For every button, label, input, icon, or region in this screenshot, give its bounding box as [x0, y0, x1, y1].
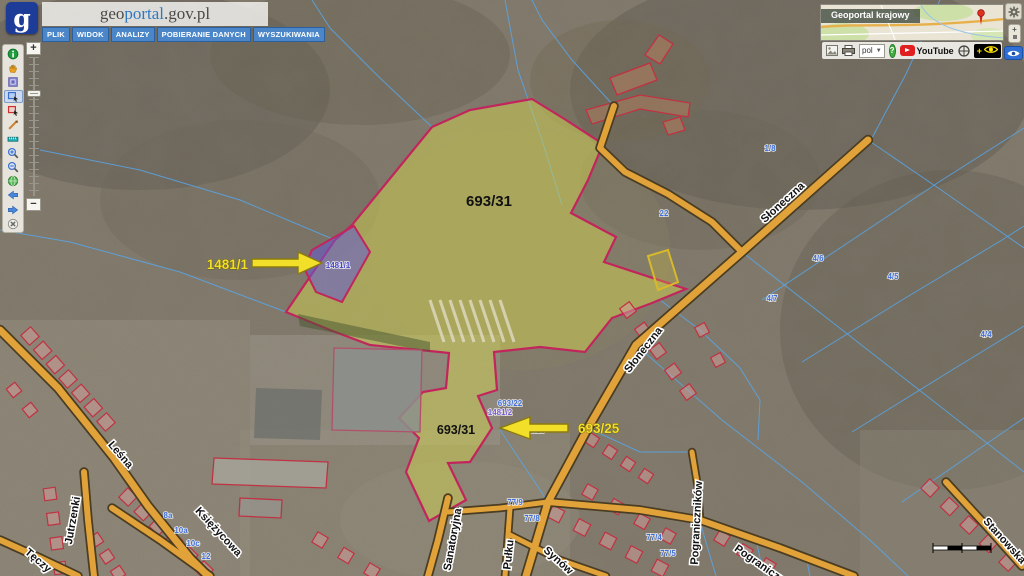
parcel-number-label: 1481/1 — [326, 261, 351, 270]
previous-view-icon — [7, 189, 19, 201]
measure-area-icon — [7, 133, 19, 145]
annotation-label: 693/25 — [578, 421, 620, 436]
map-canvas[interactable]: SłonecznaSłonecznaLeśnaJutrzenkiKsiężyco… — [0, 0, 1024, 576]
menu-item-analizy[interactable]: ANALIZY — [111, 27, 155, 42]
gear-icon — [1008, 6, 1020, 18]
measure-line-button[interactable] — [4, 118, 23, 131]
parcel-number-label: 22 — [660, 209, 669, 218]
parcel-number-label: 10c — [186, 539, 200, 548]
overview-map-title: Geoportal krajowy — [821, 9, 920, 23]
pan-hand-icon — [7, 62, 19, 74]
main-menu: PLIKWIDOKANALIZYPOBIERANIE DANYCHWYSZUKI… — [42, 27, 325, 42]
printer-icon — [842, 45, 855, 56]
menu-item-plik[interactable]: PLIK — [42, 27, 70, 42]
gallery-button[interactable] — [826, 45, 838, 56]
settings-gear-button[interactable] — [1005, 3, 1022, 20]
measure-line-icon — [7, 119, 19, 131]
help-button[interactable]: ? — [889, 44, 896, 58]
parcel-number-label: 77/8 — [524, 514, 540, 523]
parcel-number-label: 4/4 — [980, 330, 992, 339]
layers-legend-button[interactable] — [4, 75, 23, 88]
youtube-link[interactable]: YouTube — [900, 45, 954, 56]
strip-dot-icon[interactable] — [1013, 35, 1017, 39]
tool-palette — [2, 44, 24, 233]
youtube-label: YouTube — [917, 46, 954, 56]
identify-info-icon — [7, 48, 19, 60]
parcel-number-label: 77/4 — [646, 533, 662, 542]
coordinates-globe-button[interactable] — [958, 45, 970, 57]
zoom-rect-out-button[interactable] — [4, 104, 23, 117]
house-footprint — [50, 537, 63, 550]
house-footprint — [47, 512, 60, 525]
overview-map[interactable]: Geoportal krajowy — [820, 4, 1004, 41]
eye-icon — [1007, 49, 1020, 58]
measure-area-button[interactable] — [4, 132, 23, 145]
parcel-number-label: 12 — [202, 552, 211, 561]
site-title: geoportal.gov.pl — [42, 2, 268, 26]
menu-item-widok[interactable]: WIDOK — [72, 27, 109, 42]
zoom-slider-handle[interactable] — [27, 90, 41, 97]
parcel-number-label: 10a — [174, 526, 188, 535]
previous-view-button[interactable] — [4, 189, 23, 202]
strip-plus-label[interactable]: + — [1012, 25, 1017, 34]
zoom-out-button[interactable]: − — [26, 198, 41, 211]
next-view-button[interactable] — [4, 203, 23, 216]
menu-item-wyszukiwania[interactable]: WYSZUKIWANIA — [253, 27, 325, 42]
geoportal-logo[interactable]: g — [6, 2, 38, 34]
zoom-in-icon — [7, 147, 19, 159]
zoom-rect-in-icon — [7, 90, 19, 102]
parcel-number-label: 77/5 — [660, 549, 676, 558]
zoom-rect-in-button[interactable] — [4, 90, 23, 103]
cancel-button[interactable] — [4, 217, 23, 230]
title-portal: portal — [124, 4, 164, 24]
overview-zoom-strip[interactable]: + — [1008, 24, 1021, 43]
logo-g-glyph: g — [13, 4, 30, 33]
print-button[interactable] — [842, 45, 855, 56]
title-geo: geo — [100, 4, 125, 24]
zoom-in-button[interactable]: + — [26, 42, 41, 55]
chevron-down-icon: ▼ — [876, 48, 882, 54]
parcel-number-label: 8a — [164, 511, 173, 520]
parcel-area-label: 693/31 — [466, 193, 512, 210]
annotation-label: 1481/1 — [207, 257, 249, 272]
zoom-in-button[interactable] — [4, 146, 23, 159]
parcel-number-label: 4/7 — [766, 294, 778, 303]
parcel-number-label: 1481/2 — [488, 408, 513, 417]
crosshair-globe-icon — [958, 45, 970, 57]
cancel-icon — [7, 218, 19, 230]
contrast-eye-icon — [984, 45, 998, 56]
next-view-icon — [7, 204, 19, 216]
language-select[interactable]: pol ▼ — [859, 44, 885, 58]
menu-item-pobieranie-danych[interactable]: POBIERANIE DANYCH — [157, 27, 251, 42]
youtube-play-icon — [900, 45, 915, 56]
identify-info-button[interactable] — [4, 47, 23, 60]
title-suffix: .gov.pl — [164, 4, 210, 24]
parcel-number-label: 4/5 — [887, 272, 899, 281]
layers-legend-icon — [7, 76, 19, 88]
parcel-number-label: 693/22 — [498, 399, 523, 408]
visibility-eye-button[interactable] — [1004, 46, 1023, 60]
zoom-slider-track[interactable] — [29, 57, 39, 196]
utility-bar: pol ▼ ? YouTube + — [822, 42, 1002, 59]
gallery-icon — [826, 45, 838, 56]
contrast-plus-label: + — [977, 46, 982, 56]
pan-hand-button[interactable] — [4, 61, 23, 74]
zoom-rect-out-icon — [7, 104, 19, 116]
parcel-number-label: 77/9 — [507, 498, 523, 507]
house-footprint — [43, 487, 56, 500]
parcel-number-label: 1/8 — [764, 144, 776, 153]
full-extent-globe-icon — [7, 175, 19, 187]
parcel-number-label: 4/6 — [812, 254, 824, 263]
full-extent-globe-button[interactable] — [4, 175, 23, 188]
zoom-out-button[interactable] — [4, 161, 23, 174]
contrast-toggle[interactable]: + — [974, 44, 1001, 58]
parcel-area-label: 693/31 — [437, 423, 475, 437]
zoom-out-icon — [7, 161, 19, 173]
language-value: pol — [862, 46, 873, 55]
geoportal-app: SłonecznaSłonecznaLeśnaJutrzenkiKsiężyco… — [0, 0, 1024, 576]
